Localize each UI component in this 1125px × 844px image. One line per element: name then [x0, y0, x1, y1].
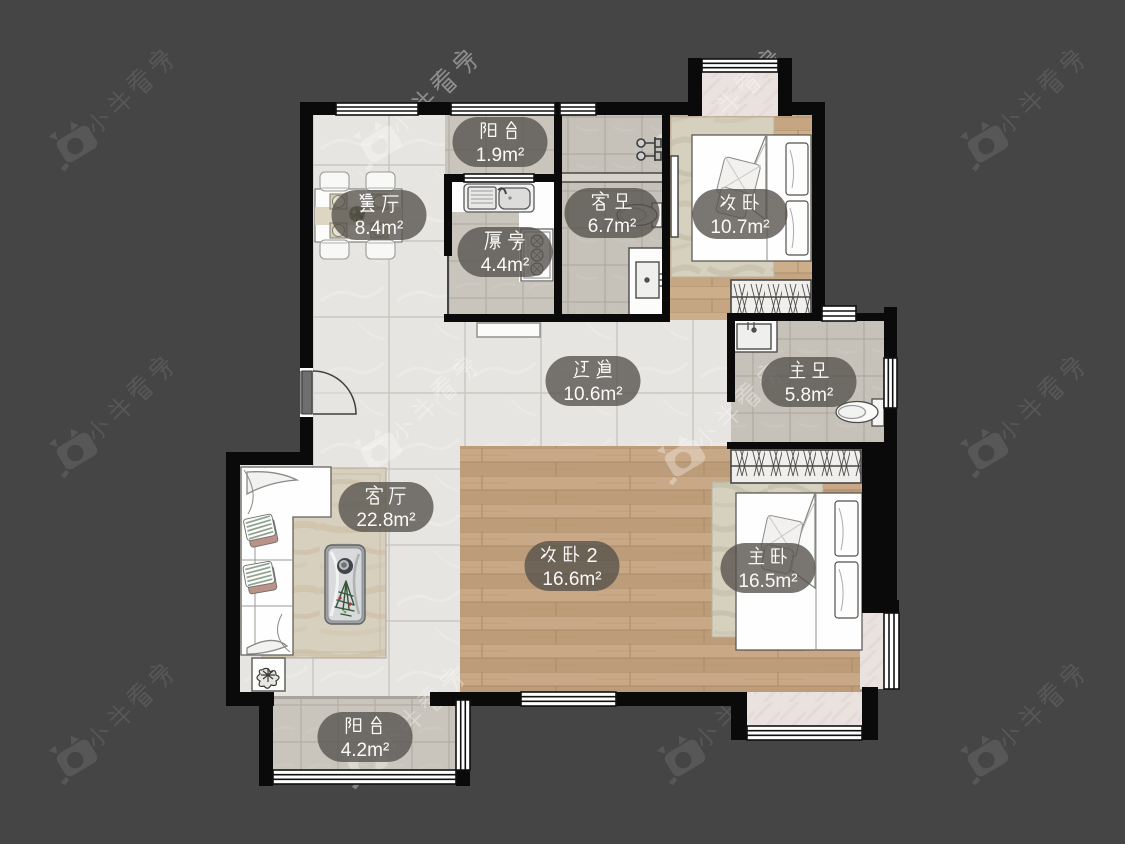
svg-text:16.6m²: 16.6m² [542, 569, 601, 590]
svg-text:2: 2 [587, 545, 598, 567]
svg-text:1.9m²: 1.9m² [476, 145, 525, 166]
svg-text:10.6m²: 10.6m² [563, 384, 622, 405]
svg-text:4.4m²: 4.4m² [481, 255, 530, 276]
svg-text:16.5m²: 16.5m² [738, 571, 797, 592]
svg-text:22.8m²: 22.8m² [356, 510, 415, 531]
svg-text:10.7m²: 10.7m² [710, 217, 769, 238]
svg-text:8.4m²: 8.4m² [355, 218, 404, 239]
svg-text:5.8m²: 5.8m² [785, 385, 834, 406]
svg-text:6.7m²: 6.7m² [588, 216, 637, 237]
svg-text:4.2m²: 4.2m² [341, 740, 390, 761]
